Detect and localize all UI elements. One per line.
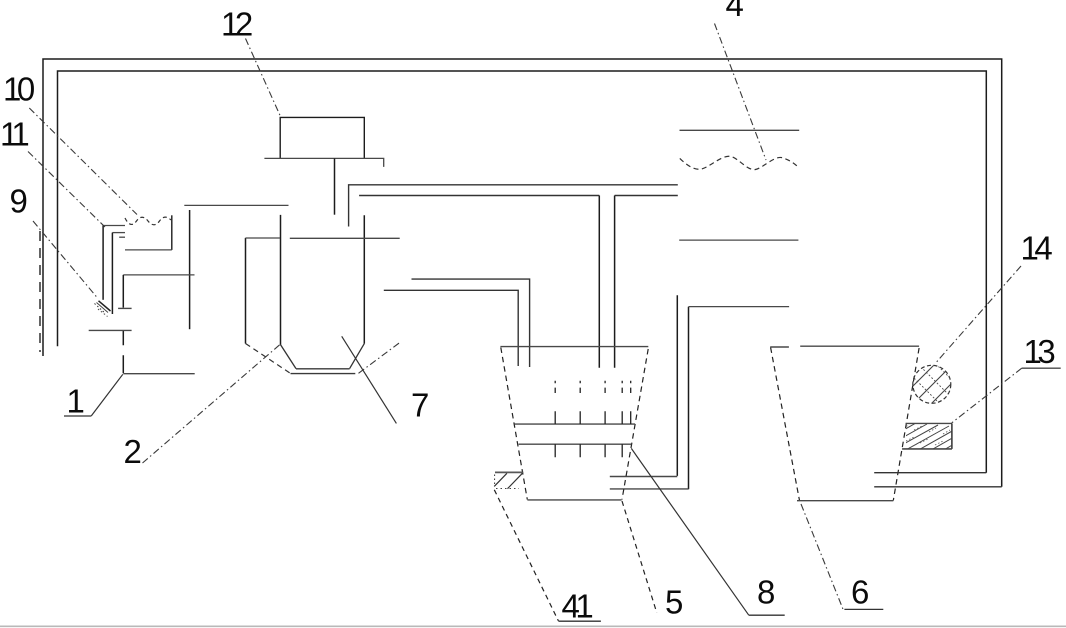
svg-text:5: 5 [665,584,683,621]
svg-text:11: 11 [0,116,28,153]
svg-text:10: 10 [3,71,35,108]
svg-text:6: 6 [851,574,869,611]
svg-text:12: 12 [221,6,252,43]
svg-text:9: 9 [10,183,28,220]
svg-text:8: 8 [757,574,775,611]
svg-text:41: 41 [562,588,593,625]
svg-text:14: 14 [1021,230,1053,267]
svg-text:13: 13 [1024,333,1055,370]
svg-text:4: 4 [726,0,744,23]
svg-text:2: 2 [124,433,142,470]
svg-text:1: 1 [67,383,85,420]
svg-text:7: 7 [411,387,429,424]
